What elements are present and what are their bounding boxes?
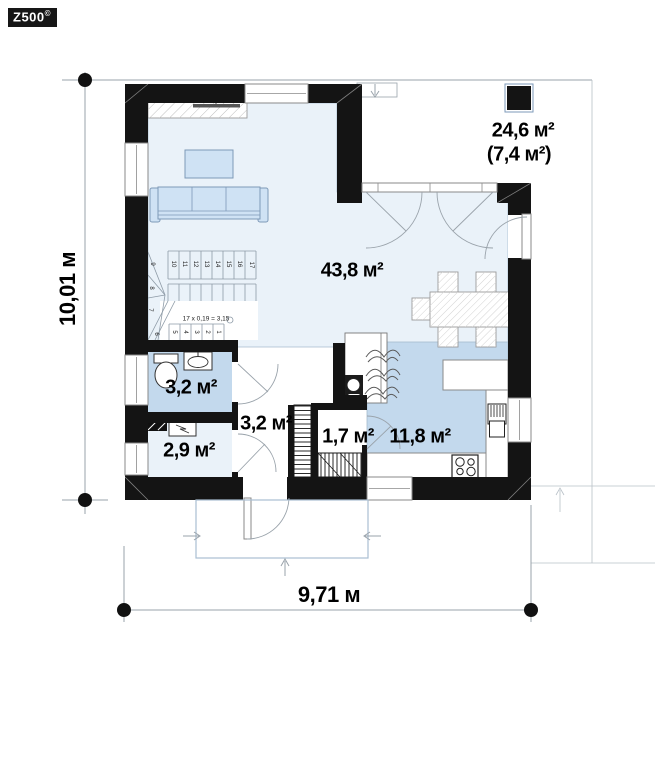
dimension-dot xyxy=(524,603,538,617)
kitchen-area-label: 11,8 м² xyxy=(389,426,450,449)
stove-icon xyxy=(452,455,478,478)
terrace-glazed-doors xyxy=(362,183,497,192)
stair-formula-label: 17 x 0,19 = 3,15 xyxy=(183,316,230,323)
furniture-coffee-table xyxy=(185,150,233,178)
stair-step-number: 6 xyxy=(153,332,159,335)
chimney xyxy=(505,84,533,112)
stair-step-number: 8 xyxy=(148,286,154,289)
stair-step-number: 5 xyxy=(171,330,177,333)
stair-step-number: 13 xyxy=(203,261,209,268)
oven-icon xyxy=(488,404,506,437)
kitchen-counter-top xyxy=(443,360,508,390)
terrace-area-label: 24,6 м² xyxy=(492,120,554,143)
width-dimension-label: 9,71 м xyxy=(298,582,360,608)
window-bottom-kitchen xyxy=(367,477,412,500)
window-top xyxy=(245,84,308,103)
sink-icon xyxy=(184,352,212,370)
window-left-bathroom xyxy=(125,355,148,405)
stair-step-number: 7 xyxy=(147,308,153,311)
dimension-dot xyxy=(117,603,131,617)
furniture-sofa xyxy=(150,187,268,222)
stair-step-number: 14 xyxy=(214,261,220,268)
window-left-living xyxy=(125,143,148,196)
stair-step-number: 15 xyxy=(225,261,231,268)
stair-step-number: 4 xyxy=(182,330,188,333)
stair-step-number: 3 xyxy=(193,330,199,333)
brand-name: Z500 xyxy=(13,9,45,24)
dimension-dot xyxy=(78,493,92,507)
stair-step-number: 2 xyxy=(204,330,210,333)
height-dimension-label: 10,01 м xyxy=(55,252,81,326)
furniture-tv-cabinet xyxy=(148,101,247,118)
utility-area-label: 2,9 м² xyxy=(163,440,215,463)
tv-icon xyxy=(193,104,240,108)
window-right-kitchen xyxy=(508,398,531,442)
wardrobe xyxy=(294,405,311,477)
copyright-symbol: © xyxy=(45,9,51,18)
stair-step-number: 9 xyxy=(149,262,155,265)
stair-step-number: 10 xyxy=(170,261,176,268)
floor-plan-page: Z500© 24,6 м² (7,4 м²) 43,8 м² 3,2 м² 3,… xyxy=(0,0,655,771)
stair-step-number: 17 xyxy=(248,262,254,269)
stair-step-number: 1 xyxy=(215,330,221,333)
bathroom-area-label: 3,2 м² xyxy=(165,377,217,400)
dimension-dot xyxy=(78,73,92,87)
pantry-area-label: 1,7 м² xyxy=(322,426,374,449)
pantry-shelves xyxy=(318,453,362,477)
stair-step-number: 11 xyxy=(181,261,187,267)
terrace-secondary-area-label: (7,4 м²) xyxy=(487,144,551,167)
window-left-utility xyxy=(125,443,148,475)
floor-plan-canvas xyxy=(0,0,655,771)
terrace-entry-arrow xyxy=(357,83,397,97)
brand-logo: Z500© xyxy=(8,8,57,27)
hall-area-label: 3,2 м² xyxy=(240,413,292,436)
stair-step-number: 12 xyxy=(192,261,198,268)
stair-step-number: 16 xyxy=(236,261,242,268)
living-room-area-label: 43,8 м² xyxy=(321,260,383,283)
